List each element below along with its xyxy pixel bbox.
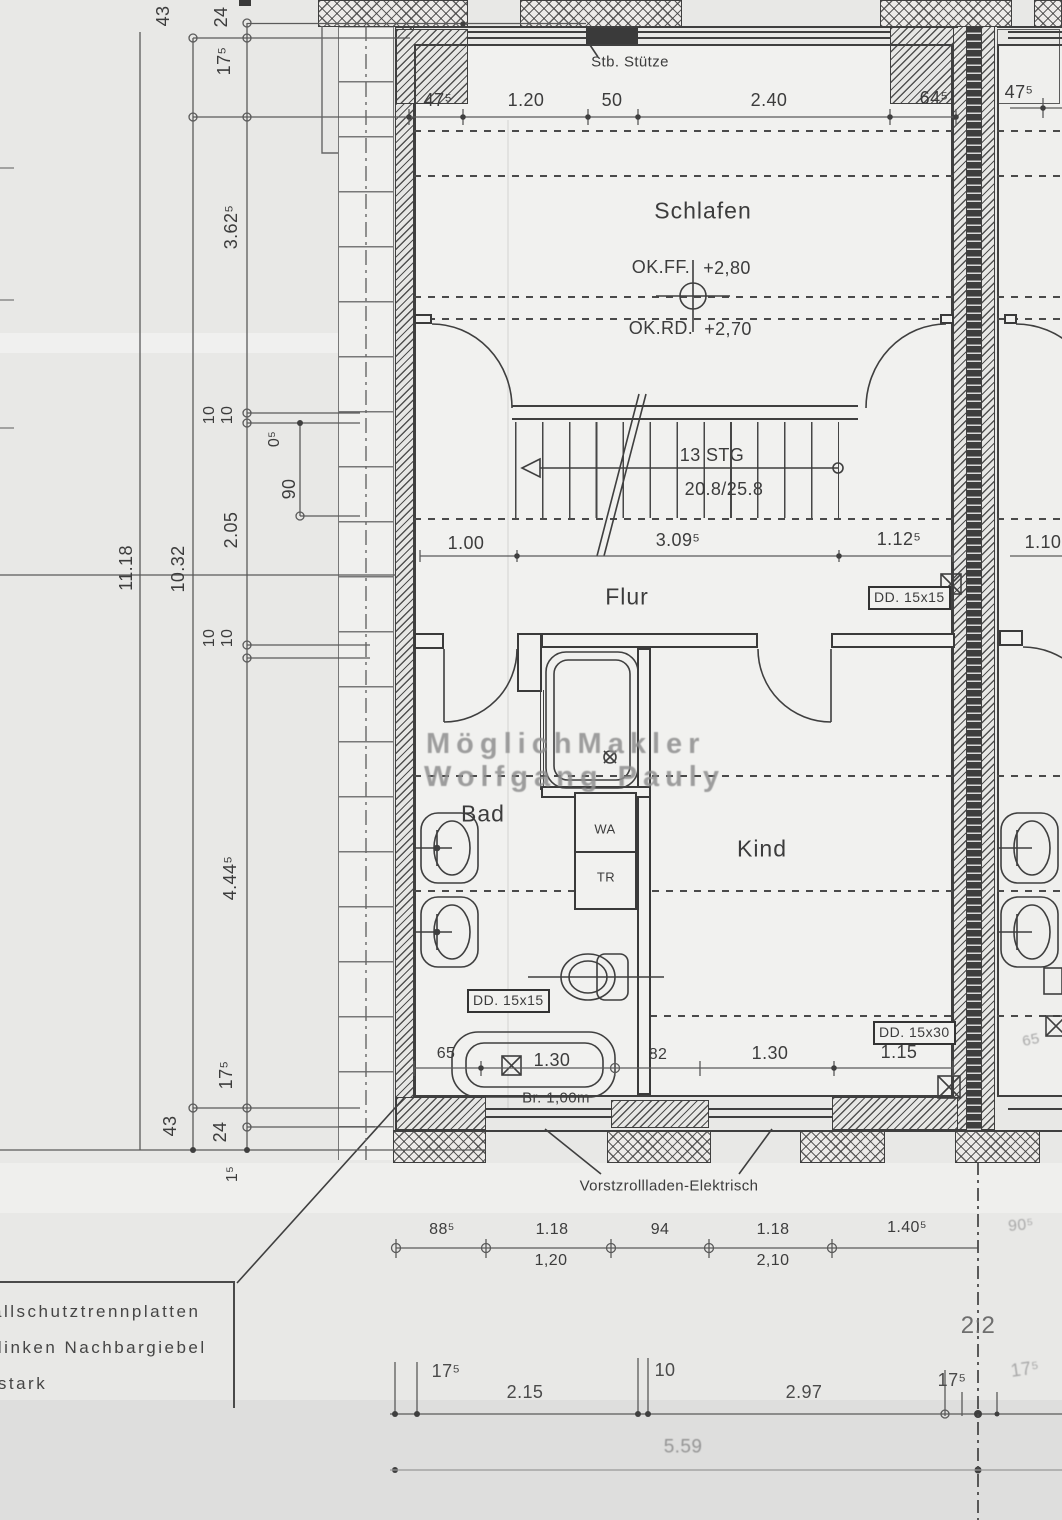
- dim-top-neighbor: 47⁵: [1005, 83, 1034, 101]
- dim-bad-2: 82: [649, 1047, 668, 1063]
- dim-total: 5.59: [664, 1438, 703, 1457]
- washer-label: WA: [594, 823, 615, 836]
- door-arc-schlafen-right: [866, 324, 946, 408]
- dim-grid-2: 10: [655, 1361, 676, 1379]
- sink-tap-icon: [414, 914, 452, 950]
- dim-stair-1: 3.09⁵: [656, 531, 701, 549]
- dim-left-13: 4.44⁵: [221, 856, 239, 901]
- stair-direction-arrow-icon: [522, 459, 540, 477]
- door-arc-neighbor-room: [1023, 647, 1062, 723]
- dim-window-4: 1.40⁵: [887, 1220, 927, 1236]
- dim-left-3: 3.62⁵: [222, 205, 240, 250]
- dim-left-1: 24: [212, 7, 230, 28]
- stairs-ratio-label: 20.8/25.8: [685, 480, 764, 498]
- dim-bad-3: 1.30: [752, 1044, 789, 1062]
- axis-label: 2:2: [961, 1314, 996, 1338]
- watermark-line-2: Wolfgang Pauly: [424, 761, 725, 794]
- room-label-flur: Flur: [605, 586, 649, 609]
- dim-bad-1: 1.30: [534, 1051, 571, 1069]
- shutters-label: Vorstzrollladen-Elektrisch: [580, 1179, 759, 1194]
- beam-label-kind: DD. 15x30: [873, 1021, 956, 1045]
- xbox-icon: [938, 1076, 960, 1098]
- dim-left-15: 43: [161, 1116, 179, 1137]
- dim-left-12: 10: [220, 629, 236, 648]
- room-label-bad: Bad: [461, 803, 505, 826]
- room-label-kind: Kind: [737, 838, 787, 861]
- watermark-line-1: MöglichMakler: [426, 728, 705, 761]
- dim-left-7: 90: [280, 479, 298, 500]
- dim-window-0: 88⁵: [429, 1222, 455, 1238]
- stair-break-line: [597, 394, 646, 556]
- note-line-1: allschutztrennplatten: [0, 1302, 200, 1322]
- dim-left-10: 11.18: [117, 545, 135, 591]
- dim-top-2: 50: [602, 91, 623, 109]
- dim-left-17: 1⁵: [225, 1166, 241, 1182]
- dim-left-0: 43: [154, 6, 172, 27]
- dim-window-3: 1.18: [757, 1222, 790, 1238]
- ok-ff-label: OK.FF.: [632, 258, 690, 276]
- dim-grid-5: 17⁵: [1010, 1358, 1041, 1380]
- door-arc-bad: [444, 649, 517, 722]
- note-box-top-border: [0, 1281, 233, 1283]
- ok-rd-label: OK.RD.: [629, 319, 693, 337]
- room-label-schlafen: Schlafen: [654, 200, 752, 223]
- shutter-leader-right: [739, 1129, 772, 1174]
- tub-width-label: Br. 1,00m: [522, 1091, 590, 1106]
- stb-stuetze-label: Stb. Stütze: [591, 55, 669, 70]
- dim-top-3: 2.40: [751, 91, 788, 109]
- xbox-icon: [502, 1056, 521, 1075]
- stairs-count-label: 13 STG: [680, 446, 744, 464]
- dim-grid-0: 17⁵: [432, 1362, 461, 1380]
- note-line-2: m linken Nachbargiebel: [0, 1338, 207, 1358]
- dim-top-0: 47⁵: [424, 91, 453, 109]
- dim-grid-4: 17⁵: [938, 1371, 967, 1389]
- dim-window-sub-1: 2,10: [757, 1253, 790, 1269]
- xbox-icon: [1046, 1016, 1062, 1036]
- door-arc-schlafen-neighbor: [1016, 324, 1062, 410]
- neighbor-cabinet: [1044, 968, 1062, 994]
- ok-ff-value: +2,80: [703, 259, 751, 277]
- ok-rd-value: +2,70: [704, 320, 752, 338]
- floor-plan: MöglichMakler Wolfgang Pauly Schlafen Fl…: [0, 0, 1062, 1520]
- dim-left-14: 17⁵: [217, 1061, 235, 1090]
- sink-tap-icon: [414, 830, 452, 866]
- dim-top-1: 1.20: [508, 91, 545, 109]
- door-arc-schlafen-left: [432, 324, 512, 408]
- neighbor-width-label: 65: [1021, 1031, 1041, 1049]
- dryer-label: TR: [597, 871, 615, 884]
- fold-tick: [0, 168, 14, 428]
- dim-bad-4: 1.15: [881, 1043, 918, 1061]
- dim-window-right: 90⁵: [1008, 1217, 1035, 1235]
- note-box-leader: [237, 1098, 404, 1283]
- note-box-right-border: [233, 1281, 235, 1408]
- shutter-leader-left: [545, 1129, 601, 1174]
- dim-grid-1: 2.15: [507, 1383, 544, 1401]
- dim-window-sub-0: 1,20: [535, 1253, 568, 1269]
- door-arc-kind: [758, 649, 831, 722]
- dim-window-1: 1.18: [536, 1222, 569, 1238]
- dim-stair-neighbor: 1.10: [1025, 533, 1062, 551]
- dim-window-2: 94: [651, 1222, 670, 1238]
- beam-label-bad: DD. 15x15: [467, 989, 550, 1013]
- dim-stair-0: 1.00: [448, 534, 485, 552]
- dim-left-16: 24: [211, 1122, 229, 1143]
- dim-bad-0: 65: [437, 1046, 456, 1062]
- strip-step-outline: [322, 26, 338, 153]
- note-line-3: m stark: [0, 1374, 47, 1394]
- dim-left-6: 0⁵: [267, 431, 283, 447]
- beam-label-flur: DD. 15x15: [868, 586, 951, 610]
- dim-grid-3: 2.97: [786, 1383, 823, 1401]
- dim-left-11: 10: [202, 629, 218, 648]
- dim-stair-2: 1.12⁵: [877, 530, 922, 548]
- dim-left-9: 10.32: [169, 545, 187, 592]
- dim-left-5: 10: [220, 406, 236, 425]
- dim-left-2: 17⁵: [215, 47, 233, 76]
- dim-left-8: 2.05: [222, 512, 240, 549]
- dimension-lines: [0, 19, 1062, 1418]
- dim-left-4: 10: [202, 406, 218, 425]
- dim-top-4: 64⁵: [920, 89, 949, 107]
